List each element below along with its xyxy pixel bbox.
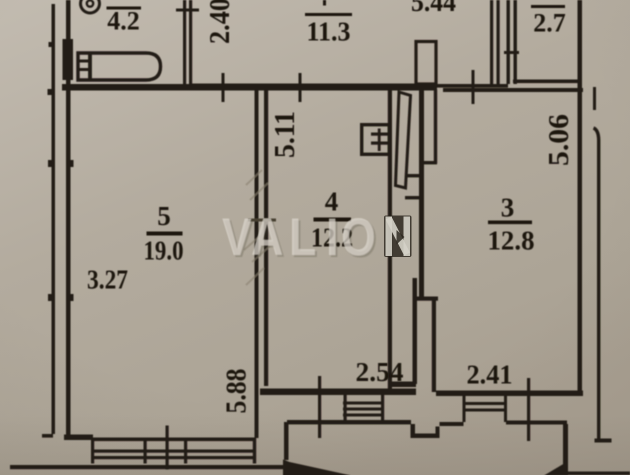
- svg-text:3.27: 3.27: [87, 265, 128, 295]
- svg-text:A: A: [251, 208, 283, 266]
- svg-text:I: I: [326, 208, 338, 266]
- svg-text:5: 5: [157, 201, 171, 231]
- svg-text:2.41: 2.41: [467, 360, 513, 390]
- svg-text:V: V: [222, 208, 252, 266]
- svg-text:5.06: 5.06: [544, 114, 575, 166]
- svg-text:12.8: 12.8: [488, 226, 535, 256]
- svg-text:3: 3: [501, 193, 515, 223]
- svg-text:L: L: [289, 208, 316, 266]
- svg-text:O: O: [341, 208, 376, 266]
- svg-text:5.44: 5.44: [411, 0, 456, 17]
- svg-text:2.7: 2.7: [533, 9, 566, 38]
- svg-text:5.11: 5.11: [270, 111, 301, 158]
- svg-text:2.54: 2.54: [356, 357, 404, 387]
- svg-text:4.2: 4.2: [107, 7, 140, 36]
- svg-text:5.88: 5.88: [221, 369, 252, 414]
- svg-text:2.40: 2.40: [205, 0, 236, 44]
- svg-text:19.0: 19.0: [144, 236, 184, 266]
- svg-text:11.3: 11.3: [307, 17, 351, 47]
